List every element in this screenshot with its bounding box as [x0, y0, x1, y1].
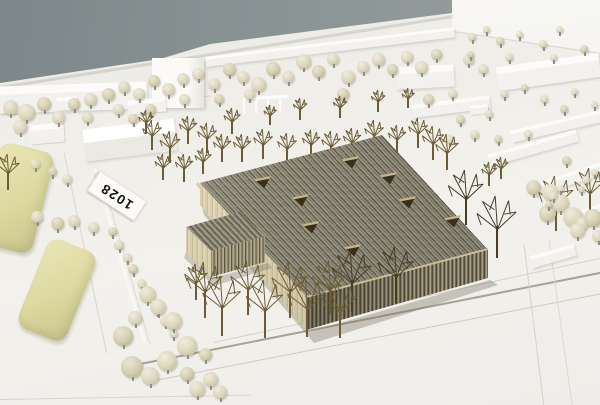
tree-puffball — [121, 356, 143, 378]
tree-puffball — [500, 90, 508, 98]
tree-puffball — [51, 217, 64, 230]
tree-bare — [0, 154, 25, 190]
tree-puffball — [580, 45, 588, 53]
tree-puffball — [223, 63, 236, 76]
tree-puffball — [123, 253, 132, 262]
tree-bare — [290, 98, 311, 120]
tree-puffball — [526, 180, 541, 195]
tree-puffball — [591, 101, 598, 108]
tree-puffball — [521, 84, 528, 91]
tree-bare — [430, 134, 464, 170]
tree-puffball — [150, 299, 166, 315]
tree-bare — [261, 105, 280, 125]
tree-puffball — [478, 64, 488, 74]
tree-bare — [368, 90, 389, 112]
tree-puffball — [48, 167, 57, 176]
tree-puffball — [102, 88, 115, 101]
tree-puffball — [296, 54, 311, 69]
tree-puffball — [237, 71, 249, 83]
tree-puffball — [18, 104, 35, 121]
tree-puffball — [199, 348, 212, 361]
tree-puffball — [496, 37, 504, 45]
tree-puffball — [485, 110, 493, 118]
tree-trunk — [496, 226, 498, 258]
tree-puffball — [327, 53, 339, 65]
tree-puffball — [584, 209, 600, 227]
tree-puffball — [456, 115, 465, 124]
tree-bare — [135, 110, 158, 134]
tree-puffball — [164, 312, 182, 330]
tree-puffball — [203, 372, 218, 387]
tree-puffball — [468, 33, 476, 41]
tree-bare — [399, 88, 418, 108]
tree-puffball — [192, 68, 204, 80]
tree-puffball — [179, 94, 190, 105]
tree-puffball — [62, 174, 72, 184]
tree-trunk — [395, 274, 397, 303]
tree-puffball — [177, 336, 197, 356]
tree-trunk — [221, 305, 223, 336]
tree-bare — [220, 108, 245, 134]
tree-puffball — [113, 326, 133, 346]
tree-puffball — [571, 88, 578, 95]
tree-puffball — [560, 105, 568, 113]
tree-puffball — [52, 111, 65, 124]
tree-puffball — [282, 71, 294, 83]
tree-bare — [313, 282, 366, 338]
tree-bare — [468, 196, 527, 258]
tree-trunk — [264, 308, 266, 338]
tree-puffball — [68, 215, 80, 227]
tree-puffball — [470, 130, 479, 139]
tree-puffball — [3, 100, 18, 115]
tree-puffball — [244, 89, 255, 100]
tree-puffball — [557, 185, 564, 192]
tree-puffball — [128, 264, 138, 274]
tree-puffball — [84, 93, 97, 106]
tree-puffball — [582, 176, 590, 184]
tree-puffball — [141, 367, 159, 385]
architectural-model-photo: 1028 — [0, 0, 600, 405]
tree-puffball — [494, 135, 502, 143]
tree-puffball — [570, 223, 585, 238]
tree-puffball — [213, 385, 227, 399]
tree-puffball — [13, 120, 27, 134]
tree-puffball — [113, 104, 124, 115]
tree-puffball — [189, 381, 205, 397]
tree-puffball — [30, 159, 40, 169]
tree-puffball — [550, 54, 557, 61]
tree-bare — [330, 96, 351, 118]
tree-puffball — [545, 201, 552, 208]
tree-puffball — [177, 73, 189, 85]
tree-puffball — [31, 211, 43, 223]
tree-trunk — [339, 309, 341, 338]
tree-puffball — [592, 230, 600, 242]
tree-puffball — [157, 351, 177, 371]
tree-puffball — [483, 26, 490, 33]
tree-puffball — [162, 83, 175, 96]
tree-puffball — [423, 94, 434, 105]
tree-puffball — [387, 64, 398, 75]
tree-puffball — [128, 311, 142, 325]
tree-puffball — [208, 78, 220, 90]
tree-bare — [491, 157, 512, 179]
tree-puffball — [467, 51, 474, 58]
tree-puffball — [431, 49, 442, 60]
tree-puffball — [539, 40, 547, 48]
tree-puffball — [516, 31, 523, 38]
tree-puffball — [148, 75, 160, 87]
tree-puffball — [578, 186, 585, 193]
tree-puffball — [37, 97, 51, 111]
tree-puffball — [524, 130, 532, 138]
tree-puffball — [505, 53, 513, 61]
tree-bare — [179, 264, 213, 300]
tree-puffball — [88, 222, 99, 233]
tree-puffball — [540, 95, 548, 103]
tree-puffball — [214, 94, 224, 104]
tree-puffball — [372, 53, 385, 66]
tree-puffball — [114, 240, 124, 250]
tree-puffball — [180, 367, 194, 381]
tree-puffball — [266, 62, 280, 76]
tree-puffball — [562, 156, 571, 165]
tree-puffball — [415, 61, 428, 74]
tree-puffball — [68, 98, 80, 110]
tree-puffball — [133, 88, 145, 100]
tree-puffball — [312, 65, 325, 78]
tree-puffball — [556, 26, 563, 33]
tree-trunk — [306, 306, 308, 337]
tree-puffball — [357, 61, 369, 73]
tree-puffball — [448, 89, 457, 98]
tree-puffball — [591, 169, 598, 176]
tree-puffball — [549, 192, 557, 200]
tree-bare — [369, 247, 422, 303]
tree-puffball — [108, 227, 117, 236]
tree-puffball — [341, 70, 355, 84]
tree-puffball — [82, 112, 93, 123]
tree-puffball — [118, 81, 130, 93]
tree-puffball — [401, 51, 413, 63]
